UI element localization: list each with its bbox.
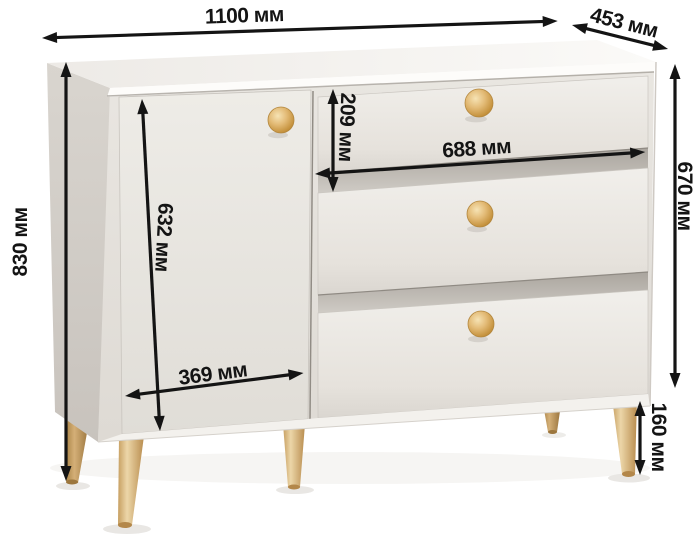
arrowhead-right: [543, 16, 558, 27]
dimension-door-height-label: 632 мм: [150, 202, 177, 272]
dimension-drawer-width-label: 688 мм: [442, 135, 512, 163]
drawer-3-knob: [468, 311, 494, 337]
arrowhead-down: [670, 373, 681, 388]
leg-front-left: [118, 436, 144, 525]
leg-back-left-tip: [66, 480, 78, 485]
drawer-2-knob: [467, 201, 493, 227]
dimension-overall-height-label: 830 мм: [9, 208, 32, 277]
arrowhead-up: [670, 64, 681, 79]
arrowhead-left: [42, 32, 57, 43]
dimension-overall-width: 1100 мм: [41, 0, 558, 43]
door-knob: [268, 107, 294, 133]
dresser-diagram-svg: 1100 мм 453 мм 830 мм 670 мм: [0, 0, 700, 540]
leg-front-left-tip: [118, 522, 132, 528]
leg-back-right-tip: [548, 430, 557, 434]
dimension-body-height: 670 мм: [670, 64, 697, 388]
dimension-leg-height-label: 160 мм: [647, 403, 670, 472]
leg-middle-tip: [288, 485, 300, 490]
dimension-diagram: 1100 мм 453 мм 830 мм 670 мм: [0, 0, 700, 540]
dimension-overall-width-line: [55, 21, 545, 37]
drawer-1-knob: [465, 89, 493, 117]
dimension-overall-width-label: 1100 мм: [205, 3, 285, 29]
leg-front-right-tip: [622, 471, 635, 477]
dimension-leg-height: 160 мм: [635, 401, 671, 475]
dimension-top-drawer-height-label: 209 мм: [334, 92, 359, 162]
dimension-body-height-label: 670 мм: [673, 162, 696, 231]
